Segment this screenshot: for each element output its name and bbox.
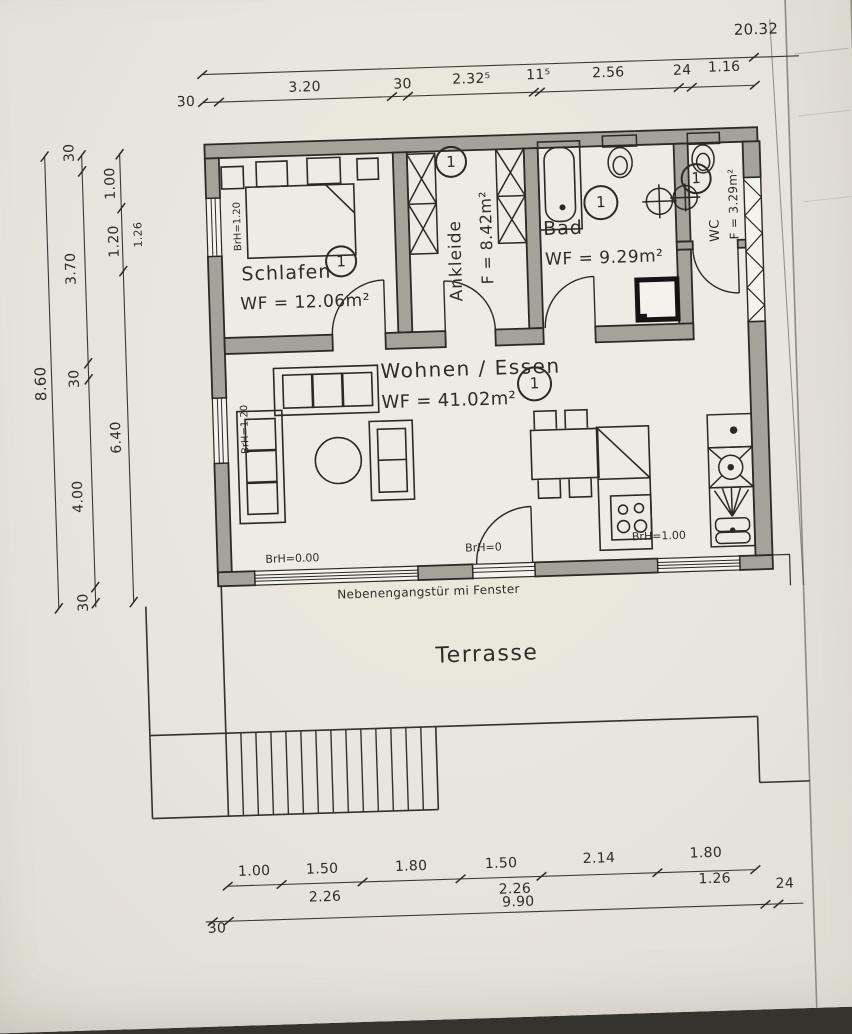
dim-bot-180b: 1.80 bbox=[689, 845, 722, 862]
dim-top-256: 2.56 bbox=[592, 64, 625, 81]
dim-bot-126: 1.26 bbox=[698, 870, 731, 887]
dim-top-30b: 30 bbox=[393, 76, 412, 93]
dim-left-total: 8.60 bbox=[31, 366, 50, 401]
dim-top-2325: 2.32⁵ bbox=[452, 71, 491, 88]
dim-left-100: 1.00 bbox=[102, 167, 119, 200]
dim-bot-226a: 2.26 bbox=[309, 889, 342, 906]
dim-left-370: 3.70 bbox=[63, 252, 80, 285]
dim-top-30a: 30 bbox=[177, 94, 196, 111]
dim-bot-100: 1.00 bbox=[238, 863, 271, 880]
brh-wohnen-window: BrH=1.20 bbox=[239, 405, 252, 454]
brh-terrace-window: BrH=0.00 bbox=[265, 551, 319, 566]
stairs bbox=[241, 727, 424, 816]
dim-left-30b: 30 bbox=[66, 369, 83, 388]
dim-top-115: 11⁵ bbox=[526, 67, 551, 84]
dim-bot-total: 9.90 bbox=[502, 894, 535, 911]
dim-left-400: 4.00 bbox=[70, 480, 87, 513]
dim-bot-24: 24 bbox=[775, 875, 794, 892]
schlafen-label: Schlafen bbox=[241, 261, 332, 286]
dim-bot-214: 2.14 bbox=[583, 850, 616, 867]
brh-schlafen-window: BrH=1.20 bbox=[232, 202, 245, 251]
dim-left-120: 1.20 bbox=[106, 225, 123, 258]
dim-left-126: 1.26 bbox=[131, 222, 145, 248]
wohnen-area: WF = 41.02m² bbox=[381, 388, 516, 413]
bad-area: WF = 9.29m² bbox=[545, 246, 664, 270]
shaft-strip bbox=[744, 177, 766, 321]
page-fold bbox=[783, 0, 852, 1008]
brh-terrace-door: BrH=0 bbox=[465, 540, 502, 554]
dim-bot-180a: 1.80 bbox=[395, 858, 428, 875]
floorplan-drawing bbox=[0, 0, 852, 973]
wc-area: F = 3.29m² bbox=[725, 168, 741, 239]
dim-top-320: 3.20 bbox=[288, 79, 321, 96]
dim-left-30a: 30 bbox=[61, 143, 78, 162]
ankleide-label: Ankleide bbox=[445, 220, 468, 302]
schlafen-area: WF = 12.06m² bbox=[240, 290, 370, 314]
shaft-box bbox=[637, 279, 678, 320]
dim-bot-150a: 1.50 bbox=[306, 861, 339, 878]
ankleide-area: F = 8.42m² bbox=[475, 191, 497, 285]
terrasse-label: Terrasse bbox=[435, 640, 539, 668]
dim-top-total: 20.32 bbox=[726, 19, 787, 39]
dim-top-116: 1.16 bbox=[708, 59, 741, 76]
plan-sheet: 20.32 30 3.20 30 2.32⁵ 11⁵ 2.56 24 1.16 … bbox=[0, 0, 852, 973]
bad-label: Bad bbox=[543, 217, 583, 240]
brh-kitchen-window: BrH=1.00 bbox=[632, 529, 686, 544]
dim-left-640: 6.40 bbox=[108, 421, 125, 454]
dim-top-24: 24 bbox=[673, 62, 692, 79]
dim-bot-150b: 1.50 bbox=[485, 855, 518, 872]
wc-label: WC bbox=[707, 219, 723, 242]
dim-left-30c: 30 bbox=[75, 593, 92, 612]
dim-bot-30: 30 bbox=[208, 920, 227, 937]
floorplan-photo: { "rooms": { "schlafen": { "name": "Schl… bbox=[0, 0, 852, 960]
